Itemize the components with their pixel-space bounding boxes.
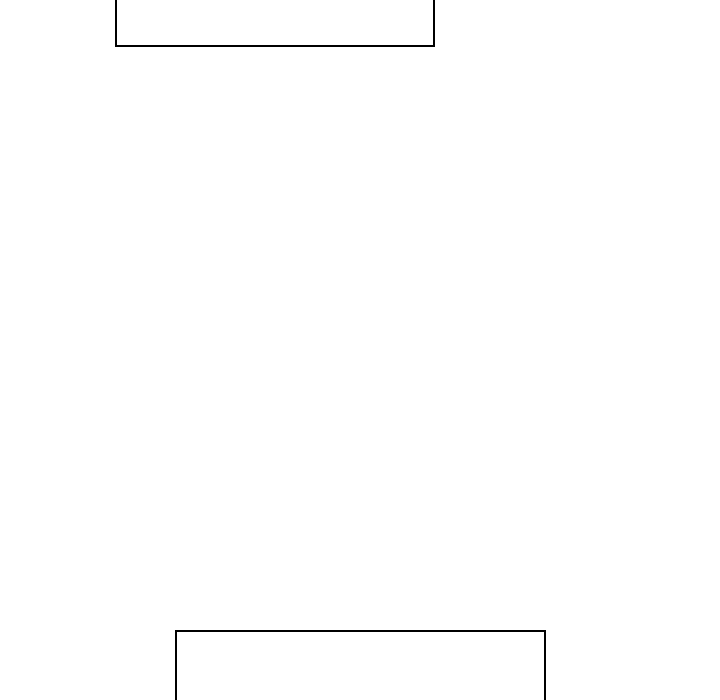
top-panel-box xyxy=(115,0,435,47)
page-canvas xyxy=(0,0,720,700)
bottom-panel-box xyxy=(175,630,546,700)
bottom-panel-content xyxy=(177,632,544,700)
top-panel-content xyxy=(117,0,433,45)
